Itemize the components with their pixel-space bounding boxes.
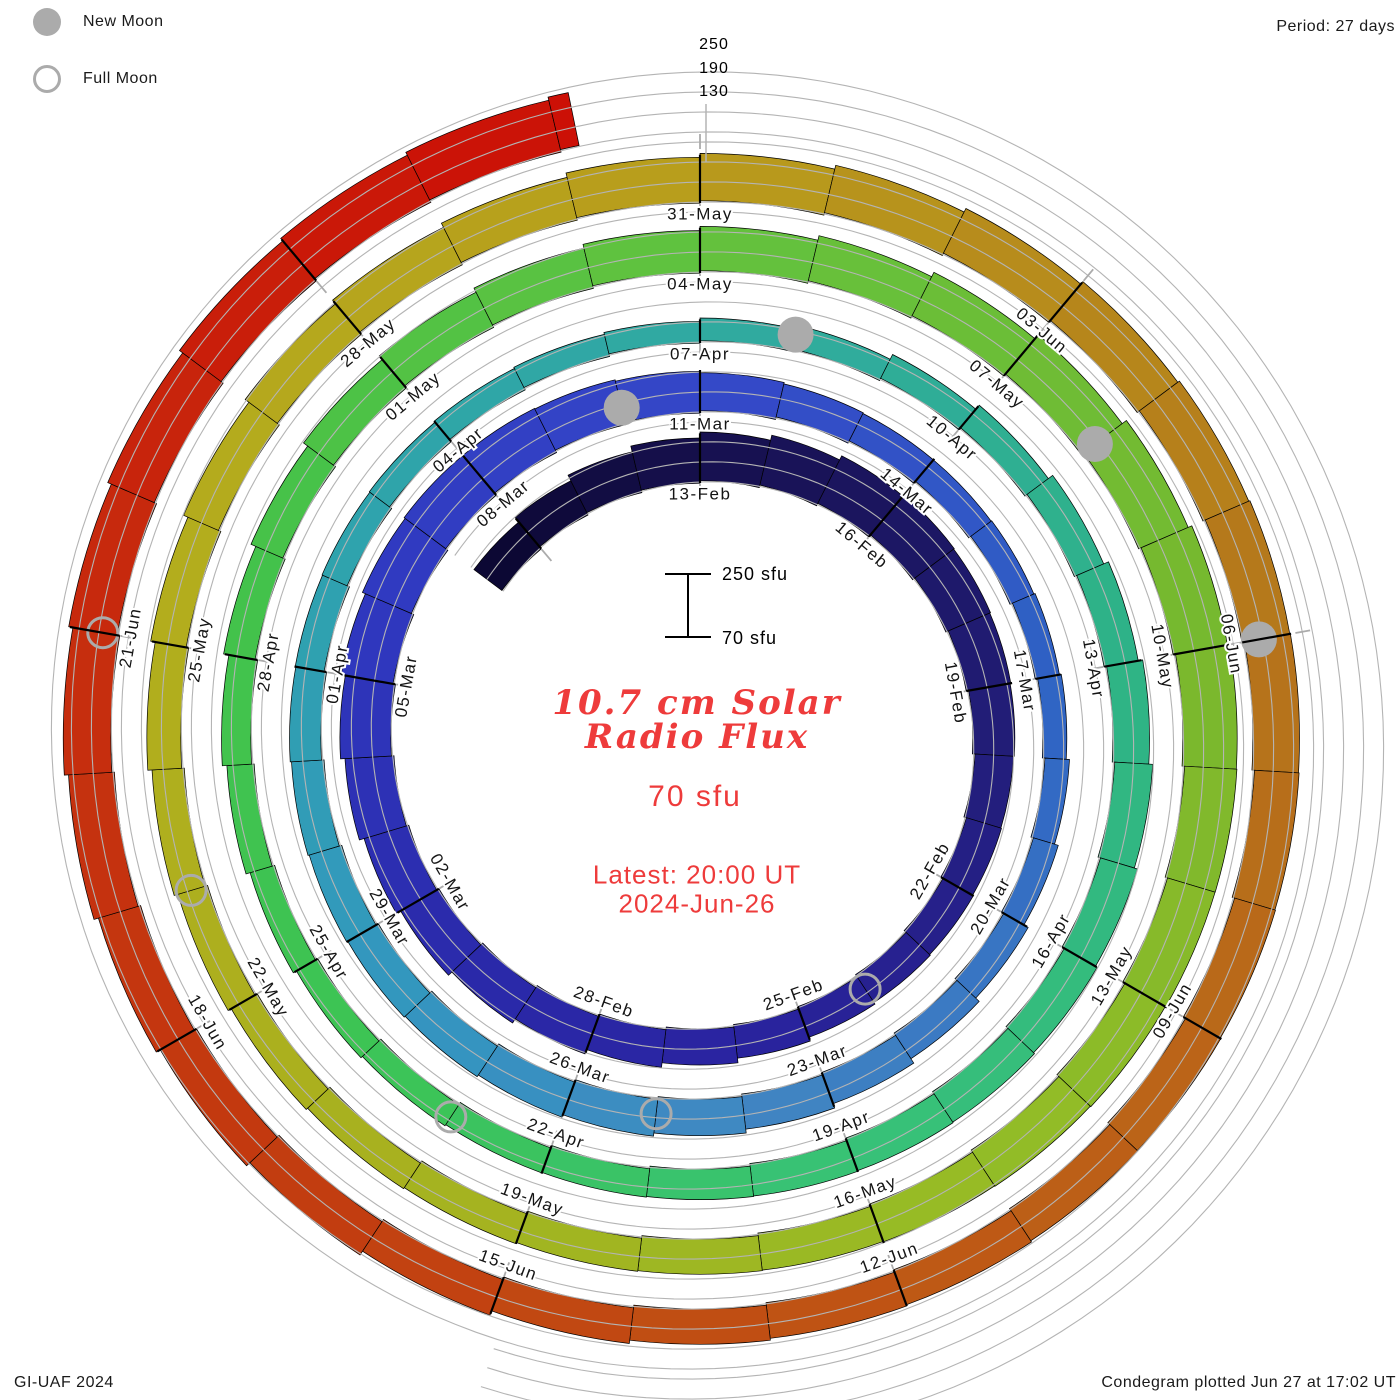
baseline-value-label: 70 sfu: [648, 780, 742, 814]
date-label: 11-Mar: [669, 414, 731, 433]
footer-plotted: Condegram plotted Jun 27 at 17:02 UT: [1101, 1374, 1396, 1392]
legend-full-moon: Full Moon: [33, 65, 158, 93]
date-label: 07-Apr: [670, 344, 730, 363]
condegram-page: 13-Feb16-Feb19-Feb22-Feb25-Feb28-Feb02-M…: [0, 0, 1400, 1400]
new-moon-icon: [33, 8, 61, 36]
latest-line2: 2024-Jun-26: [593, 889, 801, 918]
legend-full-moon-label: Full Moon: [83, 70, 158, 88]
new-moon-marker: [604, 390, 640, 426]
new-moon-marker: [1077, 426, 1113, 462]
sfu-scale-bar: [665, 574, 711, 637]
scale-top-label: 250 sfu: [722, 564, 788, 585]
date-label: 13-Feb: [669, 484, 732, 503]
legend-new-moon: New Moon: [33, 8, 163, 36]
chart-title-line2: Radio Flux: [552, 720, 841, 754]
radial-axis-label-130: 130: [699, 83, 729, 101]
radial-axis-label-250: 250: [699, 36, 729, 54]
scale-bottom-label: 70 sfu: [722, 628, 777, 649]
latest-line1: Latest: 20:00 UT: [593, 860, 801, 889]
period-label: Period: 27 days: [1276, 18, 1395, 36]
legend-new-moon-label: New Moon: [83, 13, 163, 31]
date-label: 31-May: [667, 204, 733, 223]
full-moon-icon: [33, 65, 61, 93]
radial-axis-label-190: 190: [699, 60, 729, 78]
date-label: 04-May: [667, 274, 733, 293]
chart-title-line1: 10.7 cm Solar: [552, 686, 841, 720]
footer-credit: GI-UAF 2024: [14, 1374, 114, 1392]
new-moon-marker: [778, 317, 814, 353]
latest-annotation: Latest: 20:00 UT 2024-Jun-26: [593, 860, 801, 917]
chart-title: 10.7 cm Solar Radio Flux: [552, 686, 841, 754]
